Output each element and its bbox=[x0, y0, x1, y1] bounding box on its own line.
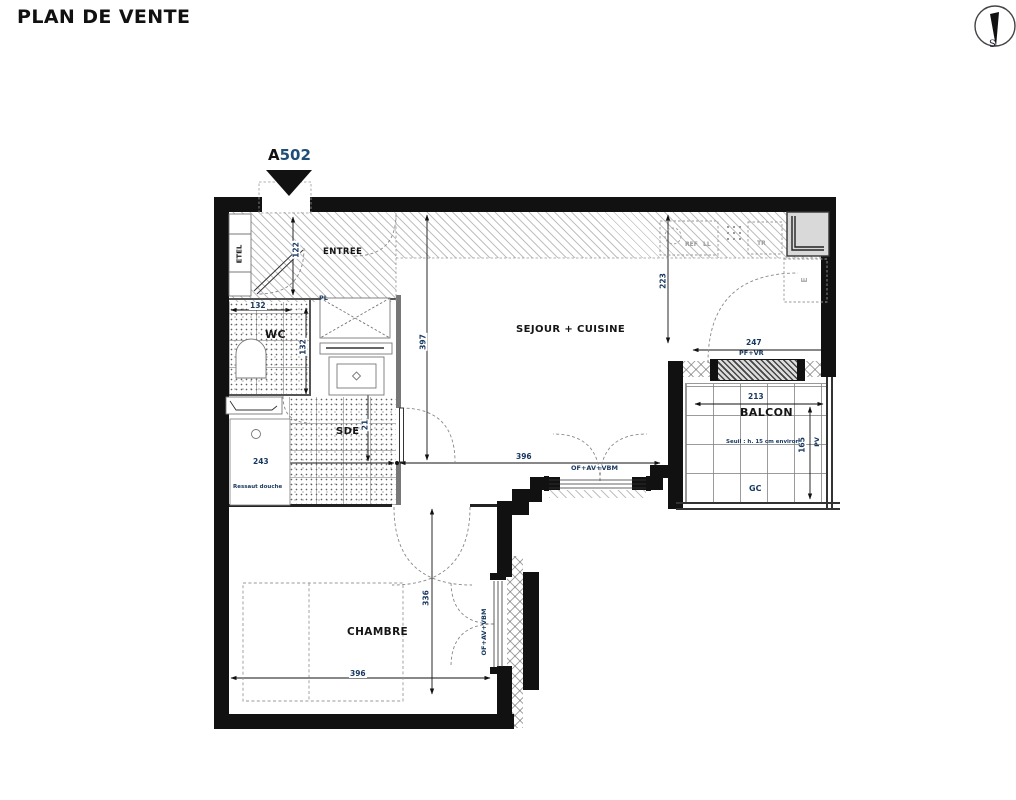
sorting-dots bbox=[727, 226, 741, 240]
door-swing-arcs bbox=[258, 214, 798, 667]
chambre-window-cap-top bbox=[490, 573, 506, 580]
label-window-sejour: OF+AV+VBM bbox=[571, 465, 618, 472]
fridge-washer-box bbox=[660, 221, 718, 255]
floor-plan-page: PLAN DE VENTE S A502 bbox=[0, 0, 1016, 800]
room-label-chambre: CHAMBRE bbox=[347, 627, 408, 638]
chambre-door-swing-2 bbox=[394, 507, 472, 585]
sorting-box bbox=[748, 222, 782, 254]
unit-entry-arrow-icon bbox=[266, 170, 312, 196]
windows bbox=[490, 476, 651, 674]
hob-icon bbox=[665, 228, 681, 244]
label-threshold-note: Seuil : h. 15 cm environ bbox=[726, 440, 799, 446]
label-balcony-door: PF+VR bbox=[739, 350, 764, 357]
dim-sejour-width: 396 bbox=[515, 453, 533, 461]
chambre-door-swing-1 bbox=[392, 507, 470, 585]
label-placard: PL bbox=[319, 295, 328, 302]
zone-boundaries bbox=[259, 182, 821, 301]
shower-shelf bbox=[226, 397, 282, 414]
french-window-cap-right bbox=[646, 476, 651, 491]
plan-linework bbox=[0, 0, 1016, 800]
french-window-swing-right bbox=[600, 434, 647, 481]
dim-chambre-depth: 336 bbox=[422, 589, 430, 607]
wc-toilet bbox=[236, 339, 266, 378]
room-label-sejour: SEJOUR + CUISINE bbox=[516, 325, 625, 335]
dim-balcony-front: 247 bbox=[745, 339, 763, 347]
unit-label: A502 bbox=[268, 146, 311, 164]
sde-door-leaf bbox=[400, 408, 404, 462]
dim-balcony-width: 213 bbox=[747, 393, 765, 401]
french-window-swing-left bbox=[553, 434, 600, 481]
dim-sejour-depth: 397 bbox=[419, 333, 427, 351]
dim-balcony-depth: 165 bbox=[798, 436, 806, 454]
bed-outline bbox=[243, 583, 403, 701]
label-washing-machine: LL bbox=[703, 242, 711, 248]
chambre-window-cap-bottom bbox=[490, 667, 506, 674]
unit-prefix: A bbox=[268, 146, 280, 164]
dim-hall-segment: 21 bbox=[361, 419, 369, 431]
label-etel: ETEL bbox=[237, 245, 244, 264]
label-shower-note: Ressaut douche bbox=[233, 485, 282, 491]
label-refrigerator: REF bbox=[685, 242, 698, 248]
dim-junction-dot bbox=[395, 461, 399, 465]
dim-chambre-width: 396 bbox=[349, 670, 367, 678]
chambre-window-frame bbox=[494, 581, 502, 667]
label-appliance: E bbox=[801, 277, 809, 282]
sde-door-swing bbox=[401, 408, 455, 462]
label-balcony-gc: GC bbox=[749, 485, 761, 493]
unit-number: 502 bbox=[280, 146, 311, 164]
label-sorting: TR bbox=[757, 241, 766, 247]
dim-wc-depth: 132 bbox=[299, 338, 307, 356]
french-window-cap-left bbox=[544, 476, 549, 491]
compass-south-label: S bbox=[989, 39, 996, 50]
fixtures bbox=[226, 214, 392, 505]
dim-entry-door: 122 bbox=[292, 241, 300, 259]
label-balcony-pv: PV bbox=[814, 437, 821, 447]
dim-sde-width: 243 bbox=[252, 458, 270, 466]
room-label-wc: WC bbox=[265, 329, 286, 340]
kitchen-sink bbox=[787, 212, 829, 256]
room-label-balcon: BALCON bbox=[740, 407, 793, 418]
dim-wc-width: 132 bbox=[249, 302, 267, 310]
room-label-sde: SDE bbox=[336, 427, 360, 437]
washbasin-inner bbox=[337, 364, 376, 388]
french-window-frame bbox=[548, 480, 646, 488]
dim-kitchen-depth: 223 bbox=[659, 272, 667, 290]
label-window-chambre: OF+AV+VBM bbox=[481, 609, 488, 656]
room-label-entree: ENTREE bbox=[323, 248, 362, 257]
